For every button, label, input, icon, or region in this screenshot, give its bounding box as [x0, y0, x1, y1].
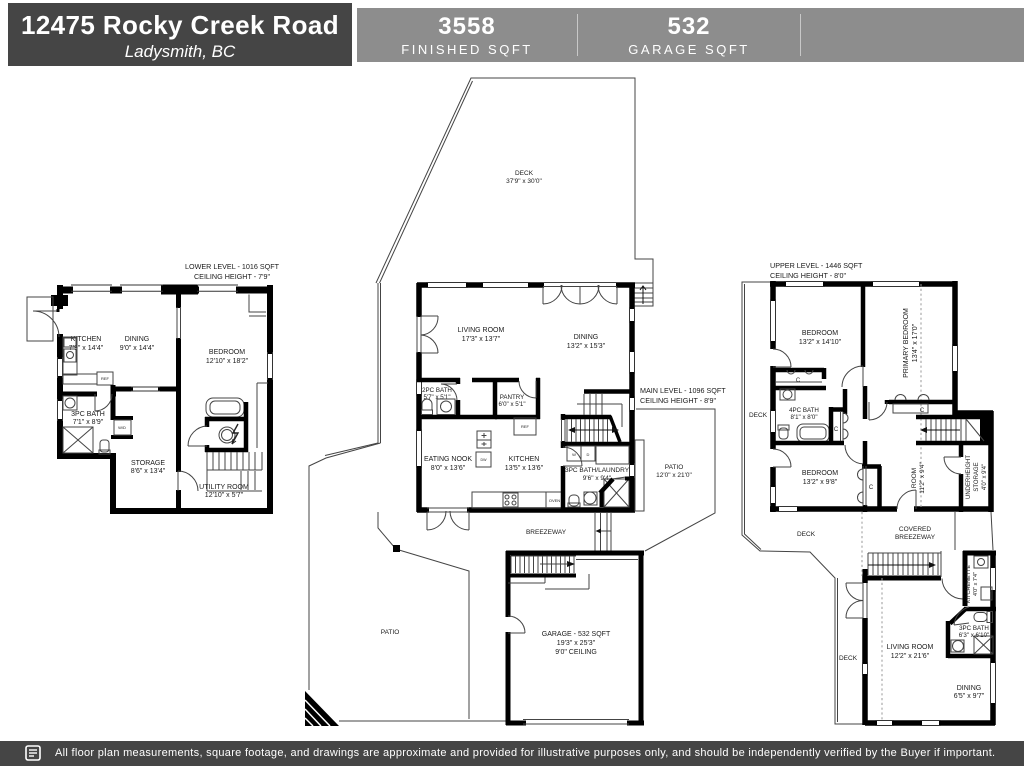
svg-text:LOWER LEVEL - 1016 SQFT: LOWER LEVEL - 1016 SQFT: [185, 262, 280, 271]
svg-text:9'0" CEILING: 9'0" CEILING: [555, 649, 597, 656]
svg-text:CEILING HEIGHT - 7'9": CEILING HEIGHT - 7'9": [194, 272, 271, 281]
svg-text:8'1" x 8'0": 8'1" x 8'0": [790, 414, 817, 421]
svg-text:3PC BATH: 3PC BATH: [71, 411, 105, 418]
svg-text:REF: REF: [521, 424, 530, 429]
svg-text:STORAGE: STORAGE: [131, 460, 165, 467]
svg-text:DECK: DECK: [797, 531, 816, 538]
svg-text:DW: DW: [481, 458, 488, 462]
svg-text:DECK: DECK: [839, 655, 858, 662]
svg-text:UNDERHEIGHT: UNDERHEIGHT: [966, 455, 972, 499]
svg-text:D: D: [587, 452, 590, 457]
svg-text:4PC BATH: 4PC BATH: [789, 407, 819, 414]
svg-text:11'2" x 9'4": 11'2" x 9'4": [919, 462, 926, 494]
svg-text:BEDROOM: BEDROOM: [802, 470, 838, 477]
svg-text:DINING: DINING: [957, 685, 982, 692]
svg-text:PATIO: PATIO: [381, 629, 400, 636]
svg-text:BEDROOM: BEDROOM: [209, 349, 245, 356]
svg-text:3PC BATH: 3PC BATH: [959, 625, 989, 632]
svg-text:W: W: [572, 452, 576, 457]
svg-text:CEILING HEIGHT - 8'0": CEILING HEIGHT - 8'0": [770, 271, 847, 280]
svg-text:DECK: DECK: [515, 170, 534, 177]
svg-text:LIVING ROOM: LIVING ROOM: [458, 327, 505, 334]
svg-text:CEILING HEIGHT - 8'9": CEILING HEIGHT - 8'9": [640, 396, 717, 405]
svg-text:OVEN: OVEN: [549, 498, 560, 503]
svg-text:UPPER LEVEL - 1446 SQFT: UPPER LEVEL - 1446 SQFT: [770, 261, 863, 270]
svg-text:BREEZEWAY: BREEZEWAY: [895, 534, 936, 541]
svg-text:PRIMARY BEDROOM: PRIMARY BEDROOM: [903, 308, 910, 378]
svg-text:C: C: [834, 427, 839, 433]
svg-text:C: C: [920, 408, 925, 414]
svg-text:13'2" x 14'10": 13'2" x 14'10": [799, 339, 842, 346]
svg-text:12'0" x 21'0": 12'0" x 21'0": [656, 472, 692, 479]
svg-text:PATIO: PATIO: [665, 464, 684, 471]
svg-text:C: C: [869, 485, 874, 491]
svg-text:KITCHEN: KITCHEN: [509, 456, 540, 463]
svg-text:BREEZEWAY: BREEZEWAY: [526, 529, 567, 536]
svg-text:8'6" x 13'4": 8'6" x 13'4": [131, 468, 166, 475]
svg-text:13'2" x 15'3": 13'2" x 15'3": [567, 343, 606, 350]
svg-text:13'5" x 13'6": 13'5" x 13'6": [505, 465, 544, 472]
svg-text:4'0" x 7'4": 4'0" x 7'4": [973, 572, 979, 596]
svg-text:4'0" x 9'4": 4'0" x 9'4": [982, 464, 988, 490]
svg-text:LIVING ROOM: LIVING ROOM: [887, 644, 934, 651]
svg-text:DINING: DINING: [574, 334, 599, 341]
svg-text:DINING: DINING: [125, 336, 150, 343]
svg-text:12'2" x 21'6": 12'2" x 21'6": [891, 653, 930, 660]
svg-text:GARAGE - 532 SQFT: GARAGE - 532 SQFT: [542, 631, 611, 638]
svg-text:12'10" x 5'7": 12'10" x 5'7": [205, 492, 244, 499]
svg-text:13'4" x 17'0": 13'4" x 17'0": [912, 323, 919, 362]
svg-text:17'3" x 13'7": 17'3" x 13'7": [462, 336, 501, 343]
svg-text:6'0" x 5'1": 6'0" x 5'1": [498, 401, 525, 408]
svg-text:7'1" x 8'9": 7'1" x 8'9": [73, 419, 104, 426]
svg-text:ROOM: ROOM: [911, 468, 918, 488]
svg-text:DECK: DECK: [749, 412, 768, 419]
svg-text:8'0" x 13'6": 8'0" x 13'6": [431, 465, 466, 472]
svg-text:C: C: [796, 378, 801, 384]
svg-text:12'10" x 18'2": 12'10" x 18'2": [206, 358, 249, 365]
svg-text:W/D: W/D: [118, 425, 126, 430]
svg-text:13'2" x 9'8": 13'2" x 9'8": [803, 479, 838, 486]
svg-text:STORAGE: STORAGE: [974, 462, 980, 491]
svg-text:MAIN LEVEL - 1096 SQFT: MAIN LEVEL - 1096 SQFT: [640, 386, 726, 395]
svg-text:EATING NOOK: EATING NOOK: [424, 456, 472, 463]
svg-text:REF: REF: [101, 376, 110, 381]
svg-text:37'9" x 30'0": 37'9" x 30'0": [506, 178, 542, 185]
svg-text:19'3" x 25'3": 19'3" x 25'3": [557, 640, 596, 647]
svg-text:9'0" x 14'4": 9'0" x 14'4": [120, 345, 155, 352]
svg-text:COVERED: COVERED: [899, 526, 931, 533]
svg-text:BEDROOM: BEDROOM: [802, 330, 838, 337]
svg-text:2PC BATH: 2PC BATH: [422, 387, 452, 394]
svg-text:PANTRY: PANTRY: [500, 394, 525, 401]
svg-text:KITCHENETTE: KITCHENETTE: [966, 565, 972, 604]
svg-text:3PC BATH/LAUNDRY: 3PC BATH/LAUNDRY: [565, 467, 630, 474]
svg-text:6'5" x 9'7": 6'5" x 9'7": [954, 693, 985, 700]
